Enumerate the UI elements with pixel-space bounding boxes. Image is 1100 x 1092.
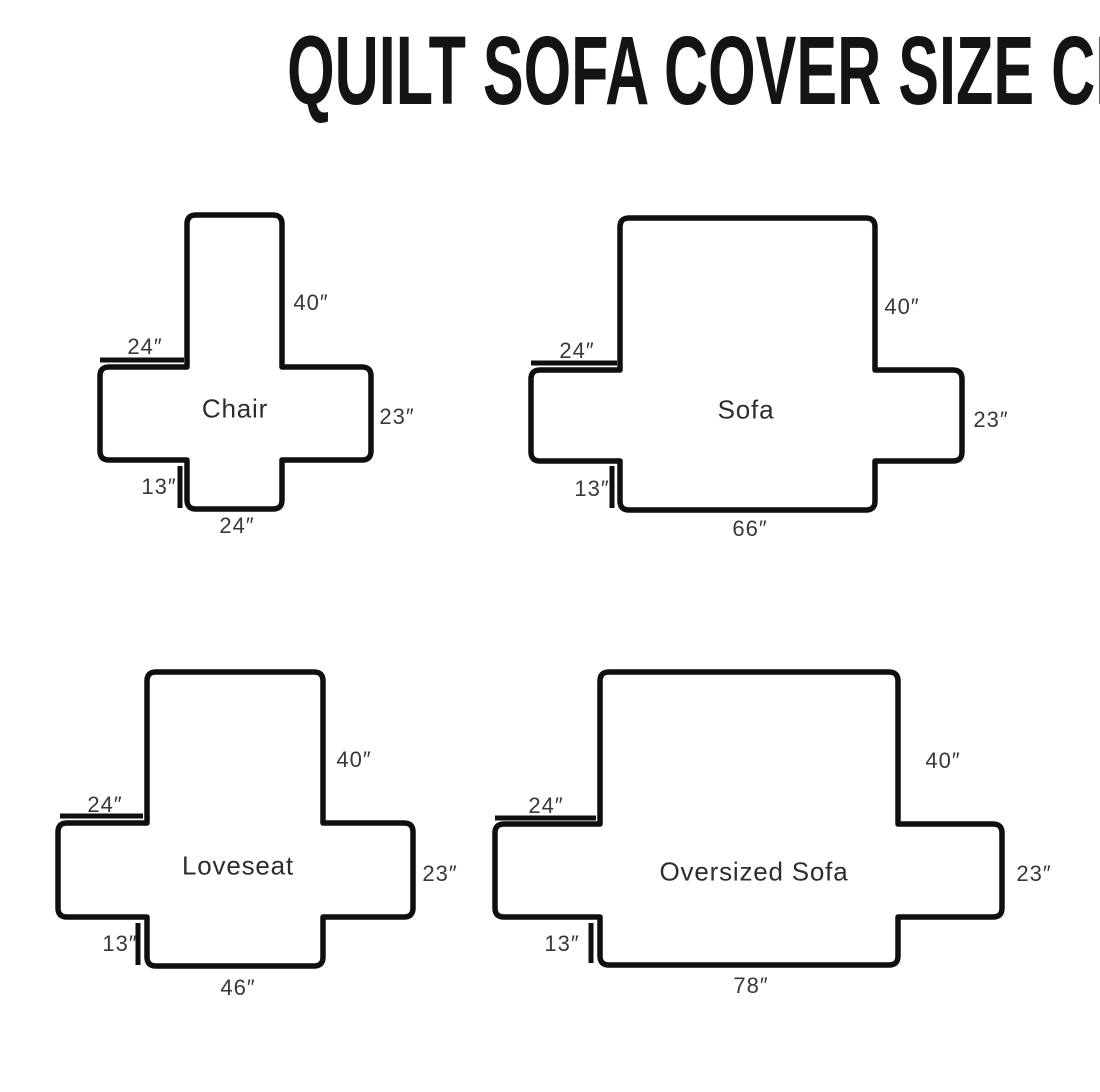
sofa-base-width-label: 66″ (732, 516, 767, 542)
loveseat-arm-top-width-label: 24″ (87, 792, 122, 818)
sofa-figure (531, 218, 962, 510)
oversized-sofa-side-height-label: 23″ (1016, 861, 1051, 887)
oversized-sofa-back-height-label: 40″ (925, 748, 960, 774)
sofa-arm-top-width-label: 24″ (559, 338, 594, 364)
loveseat-front-drop-label: 13″ (102, 931, 137, 957)
loveseat-name-label: Loveseat (182, 851, 294, 882)
oversized-sofa-figure (495, 672, 1002, 965)
sofa-front-drop-label: 13″ (574, 476, 609, 502)
loveseat-side-height-label: 23″ (422, 861, 457, 887)
sofa-name-label: Sofa (718, 395, 775, 426)
chair-arm-top-width-label: 24″ (127, 334, 162, 360)
chair-base-width-label: 24″ (219, 513, 254, 539)
chair-name-label: Chair (202, 394, 268, 425)
loveseat-back-height-label: 40″ (336, 747, 371, 773)
loveseat-base-width-label: 46″ (220, 975, 255, 1001)
oversized-sofa-front-drop-label: 13″ (544, 931, 579, 957)
chair-figure (100, 215, 371, 509)
oversized-sofa-name-label: Oversized Sofa (660, 857, 849, 888)
diagram-canvas (0, 0, 1100, 1092)
chair-front-drop-label: 13″ (141, 474, 176, 500)
chair-back-height-label: 40″ (293, 290, 328, 316)
chair-side-height-label: 23″ (379, 404, 414, 430)
oversized-sofa-arm-top-width-label: 24″ (528, 793, 563, 819)
oversized-sofa-base-width-label: 78″ (733, 973, 768, 999)
loveseat-figure (58, 672, 413, 966)
loveseat-outline (58, 672, 413, 966)
sofa-side-height-label: 23″ (973, 407, 1008, 433)
sofa-back-height-label: 40″ (884, 294, 919, 320)
